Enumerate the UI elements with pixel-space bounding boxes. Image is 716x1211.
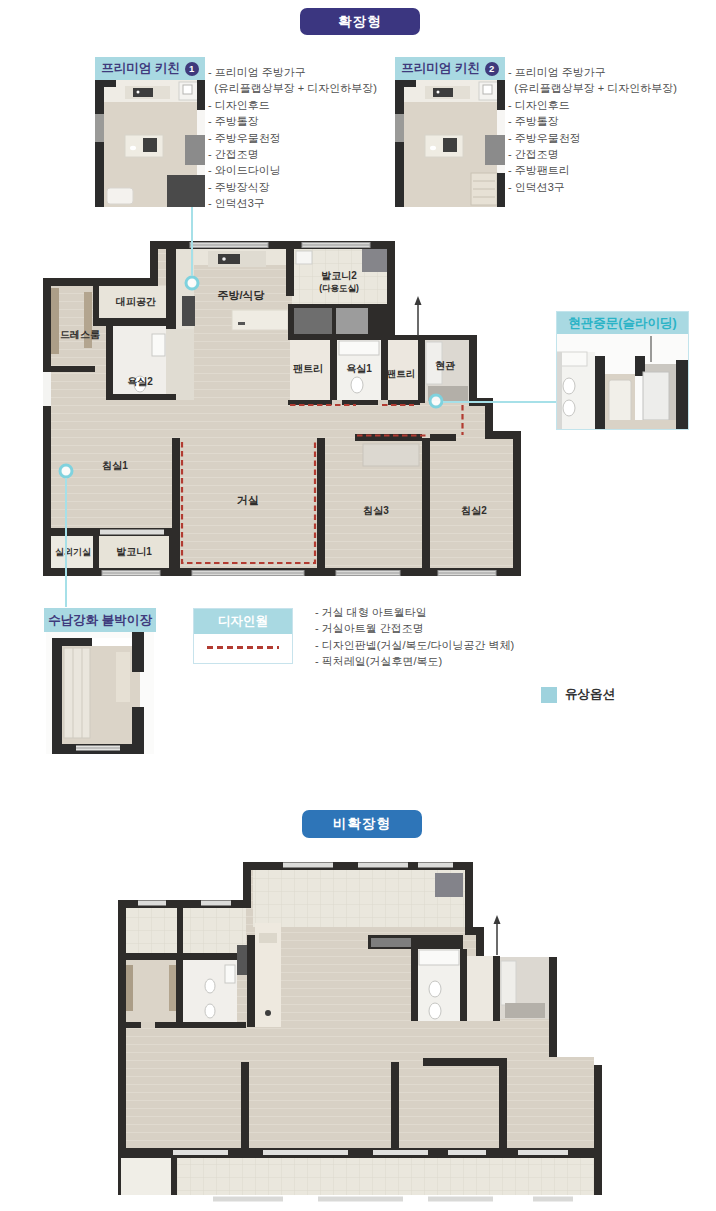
paid-option-swatch-icon: [541, 687, 557, 703]
entrance-door-plan-image: [557, 334, 688, 429]
room-label-bedroom2: 침실2: [461, 505, 487, 516]
kitchen-option-marker: [186, 277, 198, 289]
room-label-outdoor-unit: 실외기실: [55, 547, 91, 557]
top-balcony: [253, 863, 465, 928]
extended-type-badge: 확장형: [300, 8, 420, 35]
number-1-icon: 1: [185, 62, 199, 76]
design-wall-callout: 디자인월: [193, 608, 293, 664]
premium-kitchen-1-header: 프리미엄 키친 1: [95, 57, 205, 80]
room-label-entrance: 현관: [435, 360, 455, 371]
room-label-kitchen: 주방/식당: [217, 289, 264, 301]
entrance-option-marker: [430, 395, 442, 407]
top-left-block: [126, 901, 246, 1029]
premium-kitchen-2-plan-image: [395, 80, 505, 207]
premium-kitchen-1-title: 프리미엄 키친: [101, 60, 179, 77]
design-wall-dash-sample-icon: [207, 646, 279, 649]
closet-option-marker: [60, 465, 72, 477]
design-wall-title: 디자인월: [194, 609, 292, 634]
premium-kitchen-1-plan-image: [95, 80, 205, 207]
premium-kitchen-2-header: 프리미엄 키친 2: [395, 57, 505, 80]
utility-unit: [362, 249, 387, 272]
entrance-direction-arrow: [494, 915, 501, 955]
room-label-balcony1: 발코니1: [116, 546, 152, 557]
entrance-door-callout-title: 현관중문(슬라이딩): [557, 312, 688, 334]
bottom-balcony: [121, 1148, 594, 1202]
storage-closet-title: 수납강화 붙박이장: [48, 612, 151, 629]
storage-closet-plan-image: [46, 632, 154, 754]
paid-option-legend: 유상옵션: [541, 686, 615, 703]
paid-option-label: 유상옵션: [565, 686, 615, 703]
design-wall-items: - 거실 대형 아트월타일 - 거실아트월 간접조명 - 디자인판넬(거실/복도…: [315, 604, 560, 670]
extended-floor-plan: 대피공간 드레스룸 욕실2 주방/식당 발코니2 (다용도실) 팬트리 욕실1 …: [40, 238, 540, 590]
premium-kitchen-2-title: 프리미엄 키친: [401, 60, 479, 77]
non-extended-type-badge: 비확장형: [302, 810, 422, 838]
room-label-balcony2-note: (다용도실): [319, 283, 359, 293]
room-label-evacuation: 대피공간: [116, 296, 156, 307]
room-label-bathroom2: 욕실2: [127, 376, 153, 387]
room-label-pantry-a: 팬트리: [293, 363, 323, 374]
room-label-living: 거실: [237, 494, 259, 506]
room-label-balcony2: 발코니2: [321, 270, 357, 281]
entrance-direction-arrow: [415, 296, 422, 336]
room-label-dressroom: 드레스룸: [60, 329, 100, 340]
entrance-door-callout: 현관중문(슬라이딩): [556, 311, 689, 430]
room-label-bedroom3: 침실3: [363, 505, 389, 516]
room-label-pantry-b: 팬트리: [387, 368, 416, 379]
premium-kitchen-1-items: - 프리미엄 주방가구 (유리플랩상부장 + 디자인하부장) - 디자인후드 -…: [208, 64, 383, 212]
non-extended-floor-plan: [113, 853, 603, 1208]
storage-closet-header: 수납강화 붙박이장: [44, 608, 156, 632]
laundry-sink: [296, 251, 312, 264]
room-label-bedroom1: 침실1: [102, 460, 128, 471]
premium-kitchen-2-items: - 프리미엄 주방가구 (유리플랩상부장 + 디자인하부장) - 디자인후드 -…: [508, 64, 688, 195]
room-label-bathroom1: 욕실1: [346, 363, 372, 374]
number-2-icon: 2: [485, 62, 499, 76]
